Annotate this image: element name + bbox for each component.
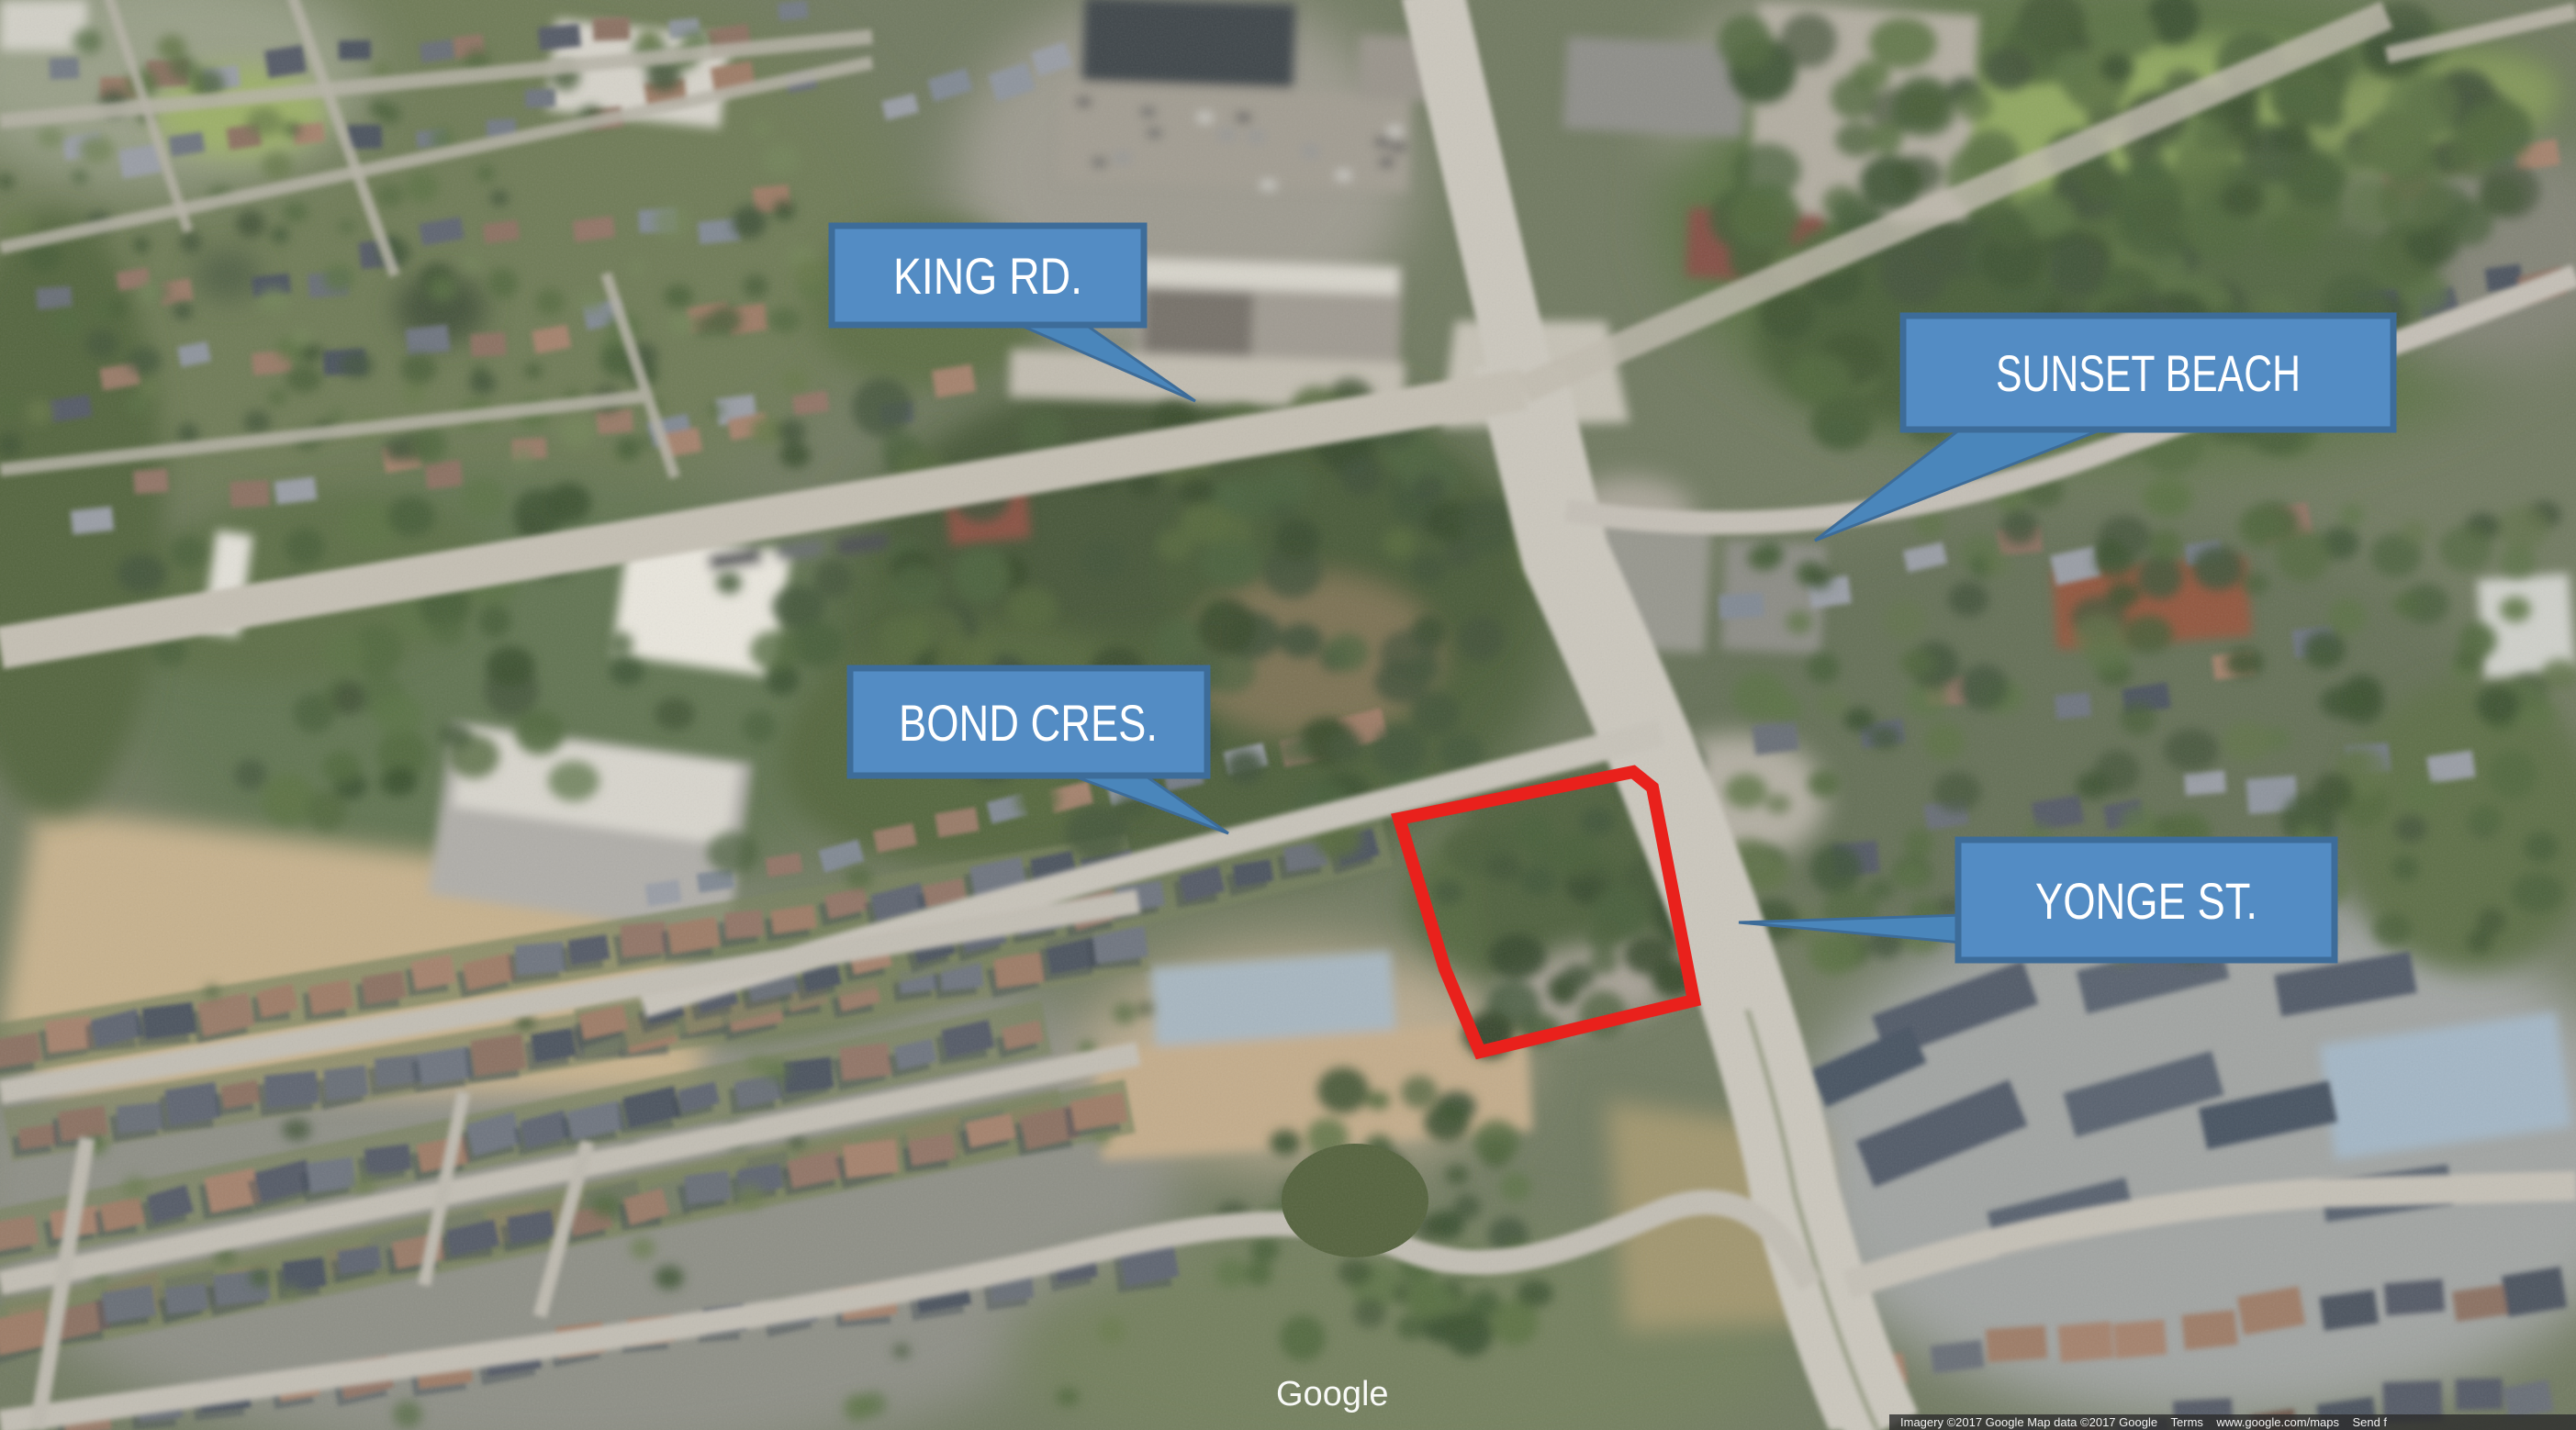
svg-text:BOND CRES.: BOND CRES. (899, 694, 1158, 752)
svg-text:YONGE ST.: YONGE ST. (2035, 872, 2257, 930)
svg-text:KING RD.: KING RD. (893, 247, 1082, 305)
svg-text:SUNSET BEACH: SUNSET BEACH (1996, 344, 2301, 402)
svg-text:Google: Google (1276, 1375, 1389, 1413)
svg-text:Imagery ©2017 Google Map data: Imagery ©2017 Google Map data ©2017 Goog… (1900, 1415, 2387, 1429)
